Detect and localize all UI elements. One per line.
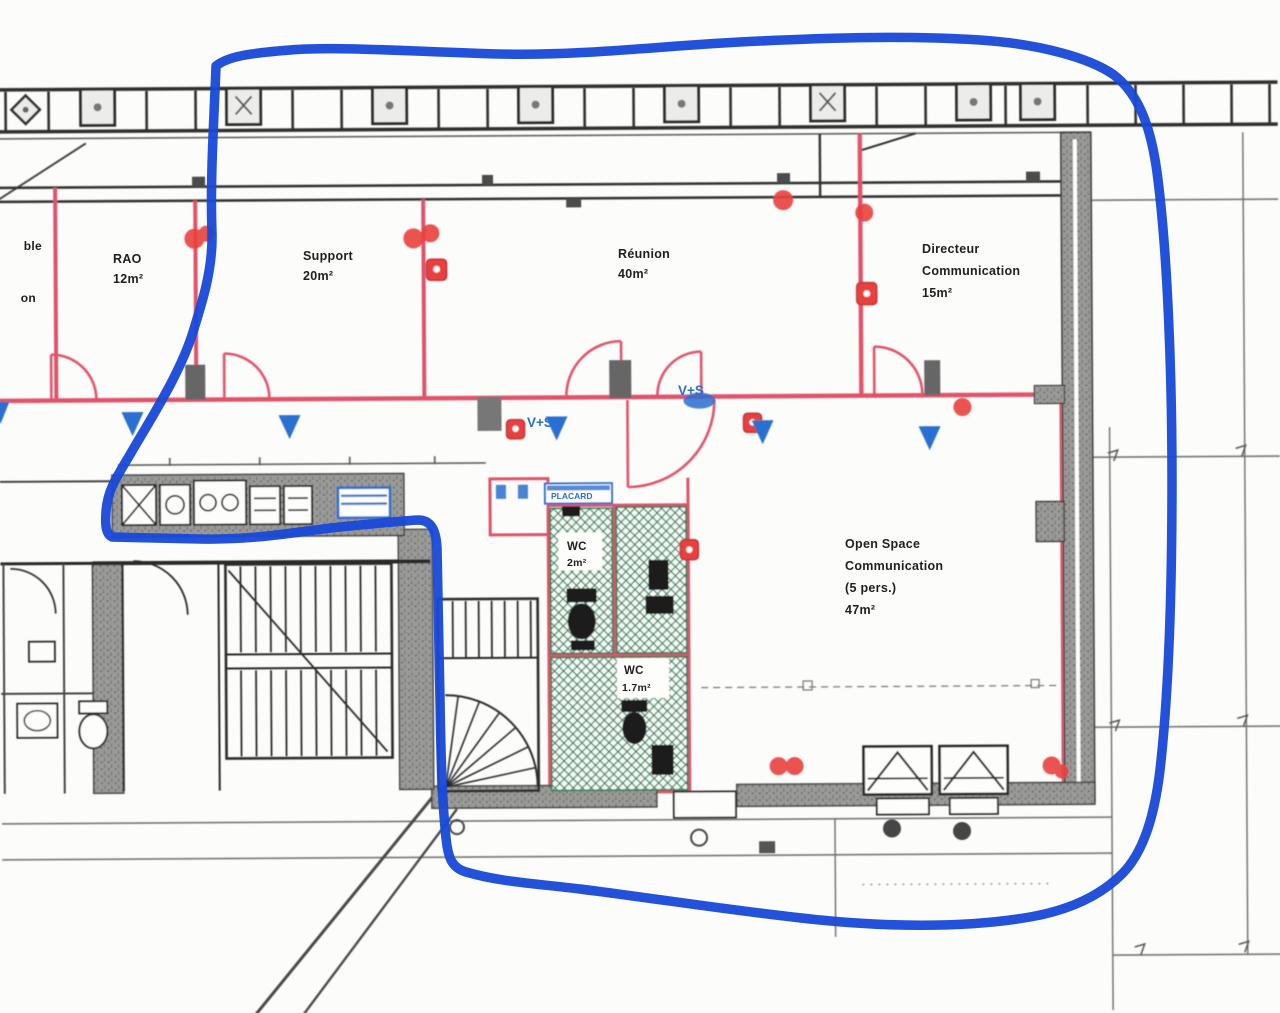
room-label-rao-area: 12m² (113, 272, 143, 286)
edge-label-fragment: ble (24, 239, 42, 253)
room-label-reunion-area: 40m² (618, 267, 648, 281)
room-label-wc2: WC (624, 665, 644, 677)
room-label-wc2-area: 1.7m² (622, 682, 651, 694)
toilet-icon (567, 588, 597, 650)
room-label-open-space-3: (5 pers.) (845, 581, 896, 595)
room-label-wc1: WC (567, 541, 587, 553)
vs-label-1: V+S (527, 415, 553, 430)
toilet-icon-2 (621, 700, 647, 744)
room-label-reunion: Réunion (618, 247, 670, 261)
placard-label: PLACARD (551, 491, 593, 501)
room-label-wc1-area: 2m² (567, 557, 587, 569)
room-label-directeur-area: 15m² (922, 286, 952, 300)
room-label-support: Support (303, 249, 354, 263)
room-label-open-space-2: Communication (845, 559, 943, 573)
scanned-page: ble on RAO 12m² Support 20m² Réunion 40m… (0, 0, 1280, 1013)
room-label-directeur: Directeur (922, 242, 980, 256)
room-label-rao: RAO (113, 252, 142, 266)
floor-plan-drawing: ble on RAO 12m² Support 20m² Réunion 40m… (0, 0, 1280, 1013)
vs-label-2: V+S (678, 383, 704, 398)
room-label-support-area: 20m² (303, 269, 333, 283)
room-label-open-space: Open Space (845, 537, 920, 551)
room-label-directeur-2: Communication (922, 264, 1020, 278)
room-label-open-space-area: 47m² (845, 603, 875, 617)
edge-label-fragment-2: on (21, 291, 36, 305)
